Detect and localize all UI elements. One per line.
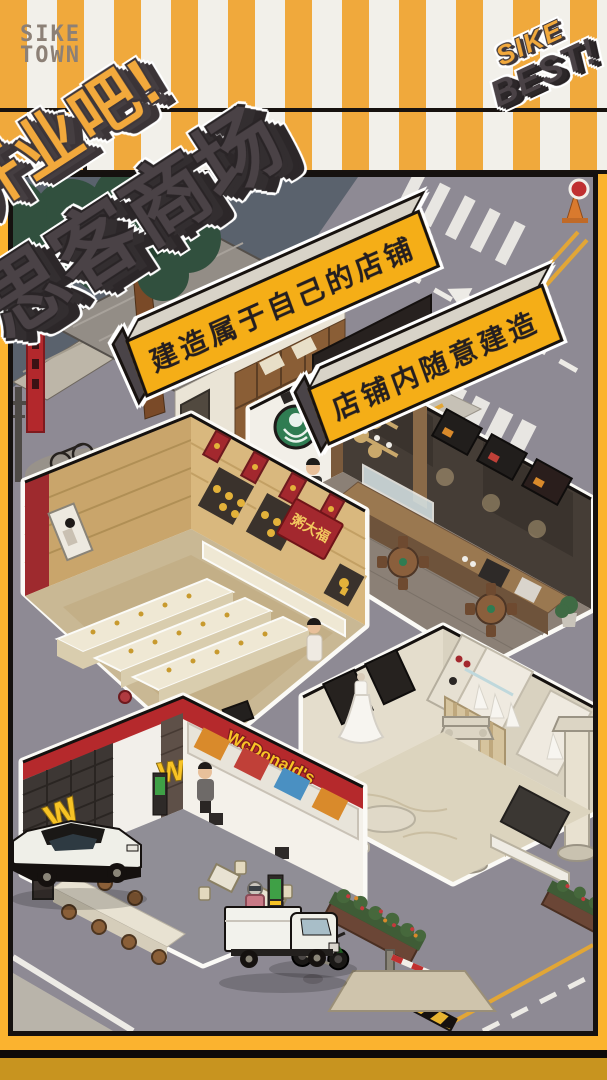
white-sports-car	[13, 821, 141, 887]
footer-black-line	[0, 1050, 607, 1058]
driveway-ramp	[329, 971, 495, 1011]
panel-right-margin	[598, 172, 607, 1036]
awning-trim-step	[83, 108, 87, 176]
footer-bright-strip	[0, 1036, 607, 1050]
panel-left-margin	[0, 172, 8, 1036]
saleswoman-character	[307, 618, 322, 661]
footer-gold-bar	[0, 1058, 607, 1080]
game-logo-line1: SIKE	[20, 24, 81, 45]
game-logo-line2: TOWN	[20, 45, 81, 66]
app-store-screenshot: SIKE TOWN SIKE BEST!	[0, 0, 607, 1080]
game-logo: SIKE TOWN	[20, 24, 81, 66]
